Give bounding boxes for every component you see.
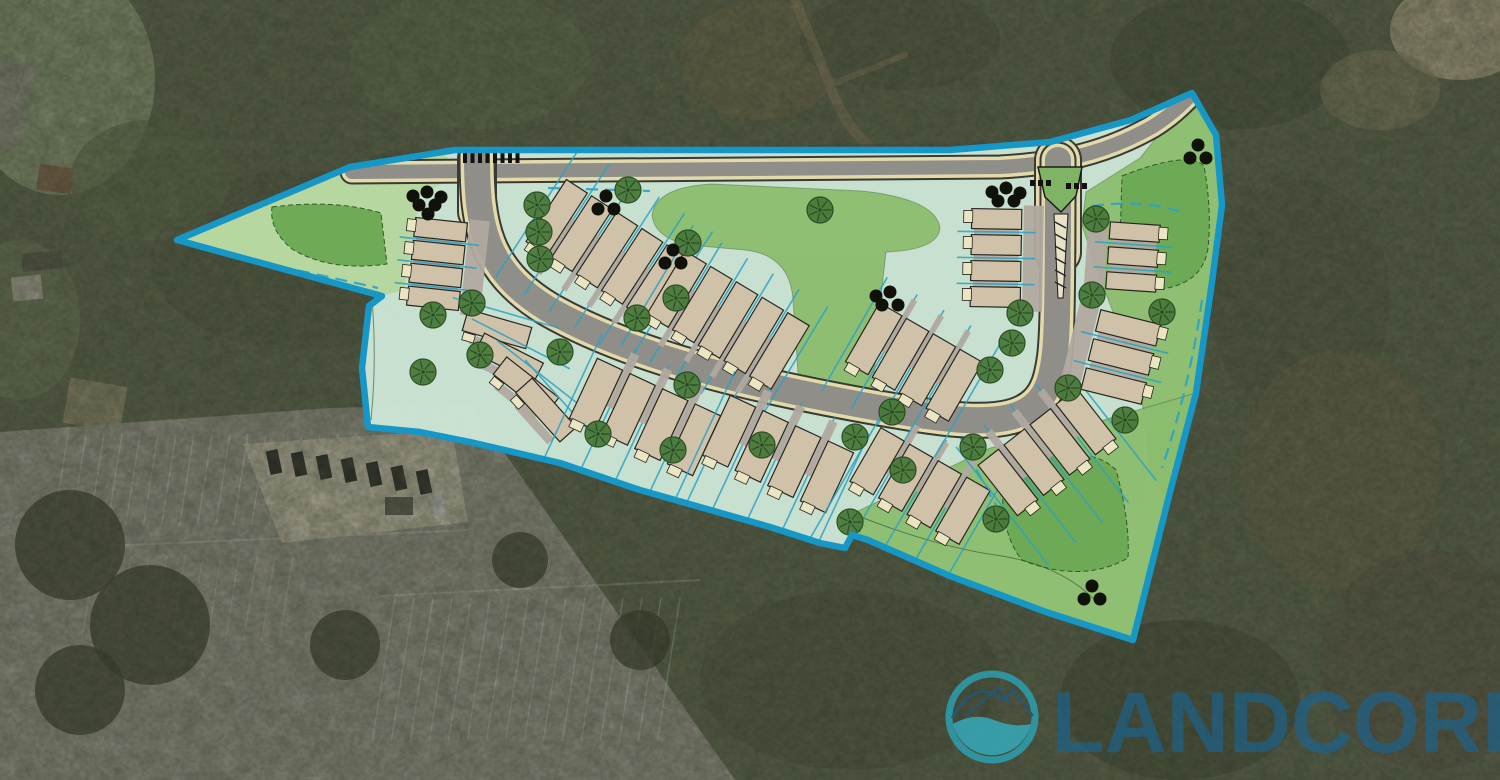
crosswalk-marking (486, 152, 490, 163)
tree-center (901, 468, 905, 472)
stop-bar-marking (1074, 183, 1079, 189)
tree-center (626, 188, 630, 192)
deciduous-tree-icon (1112, 407, 1138, 433)
deciduous-tree-icon (674, 372, 700, 398)
townhouse-unit (972, 209, 1022, 230)
entry-stoop (1155, 277, 1165, 290)
crosswalk-marking (516, 152, 520, 163)
evergreen-dot (592, 203, 605, 216)
deciduous-tree-icon (960, 434, 986, 460)
evergreen-dot (435, 191, 448, 204)
evergreen-dot (1086, 580, 1099, 593)
tree-center (994, 517, 998, 521)
evergreen-dot (892, 299, 905, 312)
tree-center (988, 368, 992, 372)
tree-center (1066, 386, 1070, 390)
evergreen-dot (1000, 182, 1013, 195)
entry-stoop (406, 219, 416, 232)
logo-wordmark: LANDCORE (1052, 675, 1500, 771)
evergreen-dot (675, 257, 688, 270)
crosswalk-marking (463, 152, 467, 163)
tree-center (685, 383, 689, 387)
tree-center (470, 301, 474, 305)
evergreen-dot (870, 290, 883, 303)
tree-center (558, 350, 562, 354)
tree-center (848, 520, 852, 524)
site-plan-rendering: LANDCORE (0, 0, 1500, 780)
tree-center (1123, 418, 1127, 422)
deciduous-tree-icon (663, 285, 689, 311)
townhouse-unit (971, 261, 1021, 282)
deciduous-tree-icon (1079, 282, 1105, 308)
tree-center (1160, 310, 1164, 314)
deciduous-tree-icon (807, 197, 833, 223)
entry-stoop (963, 262, 972, 274)
crosswalk-marking (493, 152, 497, 163)
evergreen-dot (421, 186, 434, 199)
deciduous-tree-icon (467, 342, 493, 368)
tree-center (431, 313, 435, 317)
deciduous-tree-icon (749, 432, 775, 458)
deciduous-tree-icon (1083, 206, 1109, 232)
deciduous-tree-icon (624, 305, 650, 331)
evergreen-dot (1184, 152, 1197, 165)
tree-center (760, 443, 764, 447)
deciduous-tree-icon (615, 177, 641, 203)
tree-center (818, 208, 822, 212)
deciduous-tree-icon (585, 421, 611, 447)
tree-center (1018, 311, 1022, 315)
deciduous-tree-icon (1055, 375, 1081, 401)
deciduous-tree-icon (524, 192, 550, 218)
tree-center (1090, 293, 1094, 297)
tree-center (971, 445, 975, 449)
tree-center (421, 370, 425, 374)
crosswalk-marking (508, 152, 512, 163)
deciduous-tree-icon (459, 290, 485, 316)
deciduous-tree-icon (983, 506, 1009, 532)
crosswalk-marking (501, 152, 505, 163)
evergreen-dot (608, 203, 621, 216)
tree-center (686, 241, 690, 245)
deciduous-tree-icon (526, 219, 552, 245)
townhouse-unit (1107, 247, 1158, 267)
entry-stoop (402, 264, 412, 277)
deciduous-tree-icon (410, 359, 436, 385)
evergreen-dot (407, 190, 420, 203)
townhouse-row-K (956, 204, 1044, 311)
evergreen-dot (884, 286, 897, 299)
entry-stoop (963, 236, 972, 248)
tree-center (538, 257, 542, 261)
entry-stoop (1158, 227, 1168, 240)
entry-stoop (962, 288, 971, 300)
tree-center (596, 432, 600, 436)
entry-stoop (964, 210, 973, 222)
townhouse-unit (1109, 222, 1160, 242)
deciduous-tree-icon (1007, 300, 1033, 326)
tree-center (890, 410, 894, 414)
evergreen-dot (986, 186, 999, 199)
deciduous-tree-icon (547, 339, 573, 365)
stop-bar-marking (1030, 180, 1035, 186)
evergreen-dot (1200, 152, 1213, 165)
tree-center (635, 316, 639, 320)
evergreen-dot (1078, 593, 1091, 606)
stop-bar-marking (1082, 183, 1087, 189)
site-plan-screenshot: LANDCORE (0, 0, 1500, 780)
deciduous-tree-icon (420, 302, 446, 328)
stop-bar-marking (1038, 180, 1043, 186)
deciduous-tree-icon (660, 437, 686, 463)
crosswalk-marking (478, 152, 482, 163)
tree-center (1010, 341, 1014, 345)
tree-center (853, 435, 857, 439)
deciduous-tree-icon (1149, 299, 1175, 325)
evergreen-dot (422, 208, 435, 221)
entry-stoop (404, 242, 414, 255)
tree-center (674, 296, 678, 300)
townhouse-unit (1106, 272, 1157, 292)
entry-stoop (399, 287, 409, 300)
deciduous-tree-icon (842, 424, 868, 450)
townhouse-unit (971, 235, 1021, 256)
deciduous-tree-icon (527, 246, 553, 272)
tree-center (537, 230, 541, 234)
evergreen-dot (1094, 593, 1107, 606)
evergreen-dot (667, 244, 680, 257)
deciduous-tree-icon (999, 330, 1025, 356)
tree-center (671, 448, 675, 452)
stop-bar-marking (1046, 180, 1051, 186)
evergreen-dot (1192, 139, 1205, 152)
deciduous-tree-icon (890, 457, 916, 483)
evergreen-dot (600, 190, 613, 203)
evergreen-dot (659, 257, 672, 270)
deciduous-tree-icon (837, 509, 863, 535)
tree-center (478, 353, 482, 357)
deciduous-tree-icon (977, 357, 1003, 383)
tree-center (535, 203, 539, 207)
stop-bar-marking (1066, 183, 1071, 189)
crosswalk-marking (471, 152, 475, 163)
deciduous-tree-icon (879, 399, 905, 425)
evergreen-dot (1014, 187, 1027, 200)
entry-stoop (1157, 252, 1167, 265)
tree-center (1094, 217, 1098, 221)
